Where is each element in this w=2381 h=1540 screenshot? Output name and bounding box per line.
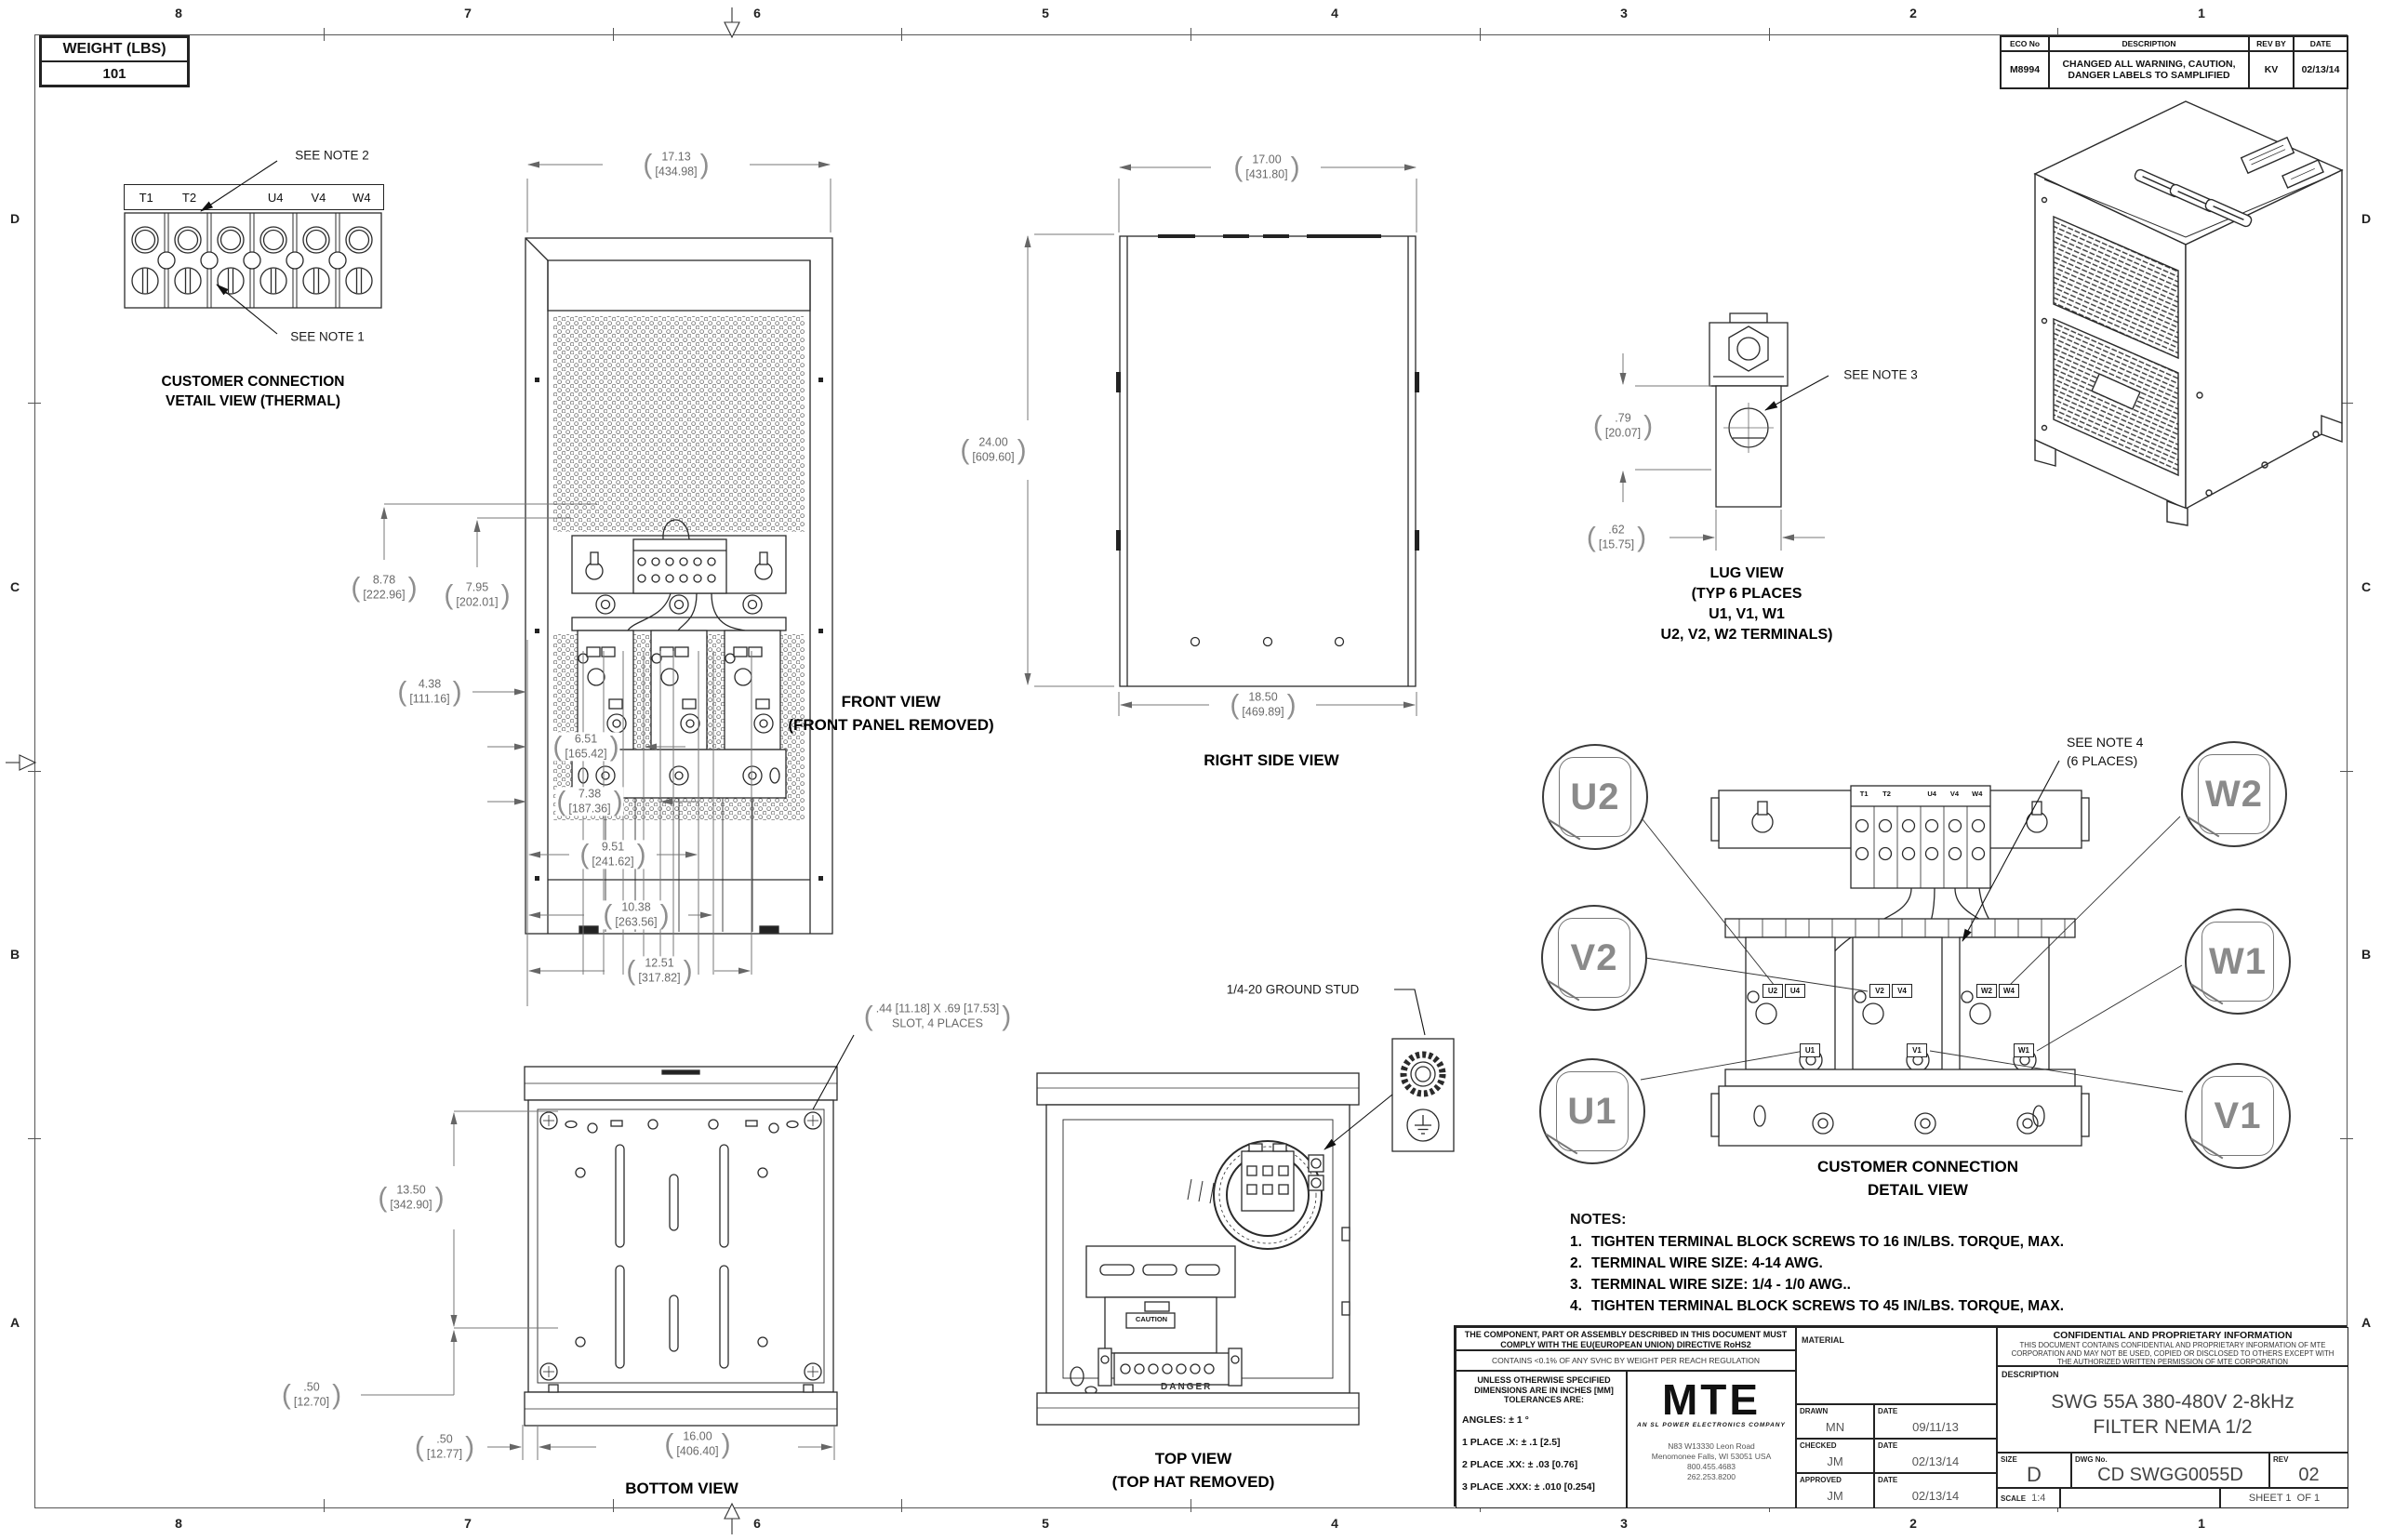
tag-v4: V4 bbox=[1892, 984, 1912, 998]
callout-label-v2: V2 bbox=[1571, 937, 1618, 979]
drawn-date: 09/11/13 bbox=[1875, 1420, 1996, 1434]
zone-col-2-bottom: 2 bbox=[1909, 1516, 1917, 1531]
dim-side-depth: (18.50[469.89]) bbox=[1229, 690, 1297, 719]
zone-row-c-right: C bbox=[2361, 579, 2371, 594]
title-block: THE COMPONENT, PART OR ASSEMBLY DESCRIBE… bbox=[1454, 1325, 2347, 1507]
drawn-box: DRAWN MN bbox=[1796, 1404, 1874, 1439]
zone-tick bbox=[2340, 1138, 2353, 1139]
note-4: 4.TIGHTEN TERMINAL BLOCK SCREWS TO 45 IN… bbox=[1570, 1295, 2064, 1317]
zone-col-1-bottom: 1 bbox=[2198, 1516, 2205, 1531]
tag-u1: U1 bbox=[1800, 1043, 1820, 1057]
zone-col-6-bottom: 6 bbox=[753, 1516, 761, 1531]
tolerance-header-3: TOLERANCES ARE: bbox=[1462, 1395, 1626, 1405]
see-note-1-callout: SEE NOTE 1 bbox=[288, 330, 366, 344]
lug-caption-line3: U1, V1, W1 bbox=[1661, 604, 1833, 625]
approved-date-box: DATE 02/13/14 bbox=[1874, 1473, 1997, 1508]
see-note-4-line2: (6 PLACES) bbox=[2067, 751, 2143, 770]
zone-col-6-top: 6 bbox=[753, 6, 761, 20]
note-3: 3.TERMINAL WIRE SIZE: 1/4 - 1/0 AWG.. bbox=[1570, 1274, 2064, 1295]
zone-tick bbox=[324, 28, 325, 41]
dim-bottom-50b: (.50[12.77]) bbox=[414, 1432, 475, 1461]
mte-phone-1: 800.455.4683 bbox=[1628, 1462, 1795, 1472]
tag-w4: W4 bbox=[1999, 984, 2019, 998]
zone-row-d-right: D bbox=[2361, 211, 2371, 226]
see-note-2-callout: SEE NOTE 2 bbox=[293, 149, 371, 163]
dim-front-h2: (7.95[202.01]) bbox=[443, 580, 511, 609]
checked-date: 02/13/14 bbox=[1875, 1454, 1996, 1468]
description-box: DESCRIPTION SWG 55A 380-480V 2-8kHz FILT… bbox=[1997, 1366, 2348, 1453]
scale-box: SCALE 1:4 bbox=[1997, 1488, 2060, 1508]
front-view-caption: FRONT VIEW (FRONT PANEL REMOVED) bbox=[788, 690, 993, 737]
checked-date-label: DATE bbox=[1878, 1441, 1897, 1450]
compliance-statement: THE COMPONENT, PART OR ASSEMBLY DESCRIBE… bbox=[1456, 1327, 1796, 1350]
weight-value: 101 bbox=[41, 61, 188, 86]
callout-label-u1: U1 bbox=[1567, 1091, 1616, 1133]
zone-tick bbox=[324, 1499, 325, 1512]
lug-view-drawing bbox=[1693, 312, 1804, 539]
checked-date-box: DATE 02/13/14 bbox=[1874, 1439, 1997, 1473]
weight-table: WEIGHT (LBS) 101 bbox=[39, 35, 190, 87]
zone-col-1-top: 1 bbox=[2198, 6, 2205, 20]
mte-address: N83 W13330 Leon Road Menomonee Falls, WI… bbox=[1628, 1441, 1795, 1482]
zone-row-b-right: B bbox=[2361, 947, 2371, 962]
right-view-caption: RIGHT SIDE VIEW bbox=[1204, 751, 1338, 770]
strip-label-u4: U4 bbox=[1921, 790, 1943, 802]
strip-label-w4: W4 bbox=[1966, 790, 1989, 802]
zone-col-3-top: 3 bbox=[1620, 6, 1628, 20]
strip-label-t2: T2 bbox=[1875, 790, 1897, 802]
top-caption-line2: (TOP HAT REMOVED) bbox=[1112, 1470, 1275, 1494]
zone-col-4-bottom: 4 bbox=[1331, 1516, 1338, 1531]
size-value: D bbox=[1998, 1463, 2070, 1487]
terminal-label-u4: U4 bbox=[254, 185, 297, 209]
eco-date: 02/13/14 bbox=[2294, 51, 2348, 88]
zone-tick bbox=[1769, 28, 1770, 41]
top-view-drawing bbox=[1035, 1069, 1361, 1427]
zone-tick bbox=[613, 1499, 614, 1512]
connection-view-caption: CUSTOMER CONNECTION DETAIL VIEW bbox=[1817, 1155, 2018, 1201]
callout-label-u2: U2 bbox=[1570, 777, 1619, 818]
size-box: SIZE D bbox=[1997, 1453, 2071, 1488]
dim-front-438: (4.38[111.16]) bbox=[396, 677, 462, 706]
dim-front-1038: (10.38[263.56]) bbox=[602, 900, 670, 929]
thermal-caption-line2: VETAIL VIEW (THERMAL) bbox=[162, 392, 345, 411]
eco-table: ECO No DESCRIPTION REV BY DATE M8994 CHA… bbox=[2000, 35, 2348, 89]
zone-tick bbox=[901, 1499, 902, 1512]
rev-value: 02 bbox=[2270, 1465, 2348, 1486]
front-caption-line1: FRONT VIEW bbox=[788, 690, 993, 713]
terminal-label-w4: W4 bbox=[340, 185, 383, 209]
ground-stud-callout: 1/4-20 GROUND STUD bbox=[1225, 983, 1362, 997]
zone-tick bbox=[28, 403, 41, 404]
tolerance-header-2: DIMENSIONS ARE IN INCHES [MM] bbox=[1462, 1386, 1626, 1396]
zone-row-a-right: A bbox=[2361, 1315, 2371, 1330]
reach-statement: CONTAINS <0.1% OF ANY SVHC BY WEIGHT PER… bbox=[1456, 1350, 1796, 1371]
zone-tick bbox=[28, 771, 41, 772]
lug-caption-line4: U2, V2, W2 TERMINALS) bbox=[1661, 625, 1833, 645]
dim-side-width: (17.00[431.80]) bbox=[1232, 153, 1300, 181]
checked-label: CHECKED bbox=[1800, 1441, 1837, 1450]
mte-tagline: AN SL POWER ELECTRONICS COMPANY bbox=[1628, 1422, 1795, 1428]
approved-label: APPROVED bbox=[1800, 1476, 1842, 1484]
callout-circle-u1: U1 bbox=[1539, 1058, 1645, 1164]
dim-front-h1: (8.78[222.96]) bbox=[350, 573, 418, 602]
zone-tick bbox=[2340, 771, 2353, 772]
mte-logo: MTE bbox=[1628, 1377, 1795, 1422]
tolerance-angles: ANGLES: ± 1 ° bbox=[1462, 1409, 1626, 1431]
dim-bottom-1600: (16.00[406.40]) bbox=[663, 1429, 731, 1458]
material-box: MATERIAL bbox=[1796, 1327, 1997, 1404]
zone-tick bbox=[1190, 28, 1191, 41]
tolerance-2-place: 2 PLACE .XX: ± .03 [0.76] bbox=[1462, 1454, 1626, 1476]
callout-circle-w1: W1 bbox=[2185, 909, 2291, 1015]
dim-side-height: (24.00[609.60]) bbox=[959, 435, 1027, 464]
eco-description: CHANGED ALL WARNING, CAUTION, DANGER LAB… bbox=[2049, 51, 2249, 88]
tag-u2: U2 bbox=[1762, 984, 1783, 998]
mte-address-1: N83 W13330 Leon Road bbox=[1628, 1441, 1795, 1452]
top-view-caption: TOP VIEW (TOP HAT REMOVED) bbox=[1112, 1447, 1275, 1494]
tag-v2: V2 bbox=[1869, 984, 1890, 998]
confidential-body: THIS DOCUMENT CONTAINS CONFIDENTIAL AND … bbox=[1998, 1341, 2348, 1366]
zone-col-7-bottom: 7 bbox=[464, 1516, 472, 1531]
top-caption-line1: TOP VIEW bbox=[1112, 1447, 1275, 1470]
callout-circle-u2: U2 bbox=[1542, 744, 1648, 850]
terminal-label-v4: V4 bbox=[297, 185, 339, 209]
description-label: DESCRIPTION bbox=[2002, 1370, 2059, 1379]
dim-front-738: (7.38[187.36]) bbox=[555, 787, 623, 816]
zone-tick bbox=[1480, 28, 1481, 41]
bottom-view-drawing bbox=[523, 1063, 839, 1430]
callout-circle-v1: V1 bbox=[2185, 1063, 2291, 1169]
callout-label-v1: V1 bbox=[2215, 1095, 2262, 1137]
strip-label-blank bbox=[1898, 790, 1921, 802]
note-1: 1.TIGHTEN TERMINAL BLOCK SCREWS TO 16 IN… bbox=[1570, 1231, 2064, 1253]
scale-value: 1:4 bbox=[2031, 1493, 2045, 1504]
dim-front-651: (6.51[165.42]) bbox=[552, 732, 619, 761]
thermal-terminal-label-strip: T1 T2 U4 V4 W4 bbox=[124, 184, 384, 210]
connection-caption-line2: DETAIL VIEW bbox=[1817, 1178, 2018, 1201]
approved-date-label: DATE bbox=[1878, 1476, 1897, 1484]
description-text: SWG 55A 380-480V 2-8kHz FILTER NEMA 1/2 bbox=[1998, 1389, 2348, 1440]
note-2: 2.TERMINAL WIRE SIZE: 4-14 AWG. bbox=[1570, 1253, 2064, 1274]
confidential-title: CONFIDENTIAL AND PROPRIETARY INFORMATION bbox=[1998, 1330, 2348, 1341]
eco-header-desc: DESCRIPTION bbox=[2049, 36, 2249, 51]
tolerance-header-1: UNLESS OTHERWISE SPECIFIED bbox=[1462, 1375, 1626, 1386]
dim-bottom-50a: (.50[12.70]) bbox=[281, 1380, 342, 1409]
isometric-view-drawing bbox=[2000, 88, 2362, 525]
size-label: SIZE bbox=[2001, 1455, 2017, 1464]
front-view-drawing bbox=[524, 229, 834, 941]
dim-front-951: (9.51[241.62]) bbox=[579, 840, 646, 869]
terminal-label-t1: T1 bbox=[125, 185, 167, 209]
tolerances-box: UNLESS OTHERWISE SPECIFIED DIMENSIONS AR… bbox=[1456, 1371, 1627, 1508]
notes-block: NOTES: 1.TIGHTEN TERMINAL BLOCK SCREWS T… bbox=[1570, 1209, 2064, 1317]
lug-caption-line2: (TYP 6 PLACES bbox=[1661, 584, 1833, 604]
zone-tick bbox=[901, 28, 902, 41]
dwg-no-box: DWG No. CD SWGG0055D bbox=[2071, 1453, 2269, 1488]
eco-header-date: DATE bbox=[2294, 36, 2348, 51]
sheet-value: SHEET 1 OF 1 bbox=[2249, 1493, 2320, 1504]
zone-col-8-bottom: 8 bbox=[175, 1516, 182, 1531]
approved-box: APPROVED JM bbox=[1796, 1473, 1874, 1508]
front-caption-line2: (FRONT PANEL REMOVED) bbox=[788, 713, 993, 737]
zone-col-5-top: 5 bbox=[1042, 6, 1049, 20]
eco-rev-by: KV bbox=[2249, 51, 2294, 88]
drawing-sheet: 8 7 6 5 4 3 2 1 8 7 6 5 4 3 2 1 D C B A … bbox=[0, 0, 2381, 1540]
terminal-label-blank bbox=[211, 185, 254, 209]
scale-spacer-cell bbox=[2060, 1488, 2220, 1508]
checked-name: JM bbox=[1797, 1454, 1873, 1468]
dwg-no-value: CD SWGG0055D bbox=[2072, 1465, 2268, 1486]
caution-label: CAUTION bbox=[1128, 1315, 1175, 1323]
checked-box: CHECKED JM bbox=[1796, 1439, 1874, 1473]
thermal-terminal-block-drawing bbox=[124, 212, 382, 309]
tolerance-3-place: 3 PLACE .XXX: ± .010 [0.254] bbox=[1462, 1476, 1626, 1498]
approved-date: 02/13/14 bbox=[1875, 1489, 1996, 1503]
drawn-label: DRAWN bbox=[1800, 1407, 1828, 1415]
terminal-label-t2: T2 bbox=[167, 185, 210, 209]
lug-view-caption: LUG VIEW (TYP 6 PLACES U1, V1, W1 U2, V2… bbox=[1661, 564, 1833, 645]
zone-tick bbox=[1190, 1499, 1191, 1512]
mte-phone-2: 262.253.8200 bbox=[1628, 1472, 1795, 1482]
dwg-no-label: DWG No. bbox=[2075, 1455, 2108, 1464]
slot-note: (.44 [11.18] X .69 [17.53]SLOT, 4 PLACES… bbox=[863, 1002, 1013, 1030]
zone-row-b-left: B bbox=[10, 947, 20, 962]
mte-address-2: Menomonee Falls, WI 53051 USA bbox=[1628, 1452, 1795, 1462]
connection-strip-labels: T1 T2 U4 V4 W4 bbox=[1853, 790, 1989, 802]
lug-caption-line1: LUG VIEW bbox=[1661, 564, 1833, 584]
eco-no: M8994 bbox=[2001, 51, 2049, 88]
dim-front-width: (17.13[434.98]) bbox=[642, 150, 710, 179]
right-side-view-drawing bbox=[1116, 232, 1419, 690]
eco-header-no: ECO No bbox=[2001, 36, 2049, 51]
approved-name: JM bbox=[1797, 1489, 1873, 1503]
notes-title: NOTES: bbox=[1570, 1209, 2064, 1231]
see-note-4-callout: SEE NOTE 4 (6 PLACES) bbox=[2067, 733, 2143, 770]
tag-u4: U4 bbox=[1785, 984, 1805, 998]
dim-lug-62: (.62[15.75]) bbox=[1586, 523, 1647, 551]
zone-col-7-top: 7 bbox=[464, 6, 472, 20]
zone-row-d-left: D bbox=[10, 211, 20, 226]
sheet-box: SHEET 1 OF 1 bbox=[2220, 1488, 2348, 1508]
zone-col-3-bottom: 3 bbox=[1620, 1516, 1628, 1531]
connection-caption-line1: CUSTOMER CONNECTION bbox=[1817, 1155, 2018, 1178]
confidential-box: CONFIDENTIAL AND PROPRIETARY INFORMATION… bbox=[1997, 1327, 2348, 1366]
zone-row-c-left: C bbox=[10, 579, 20, 594]
thermal-view-caption: CUSTOMER CONNECTION VETAIL VIEW (THERMAL… bbox=[162, 372, 345, 411]
tag-v1: V1 bbox=[1907, 1043, 1927, 1057]
dim-lug-79: (.79[20.07]) bbox=[1592, 411, 1654, 440]
bottom-view-caption: BOTTOM VIEW bbox=[625, 1480, 738, 1498]
scale-label: SCALE bbox=[2001, 1494, 2026, 1503]
rev-box: REV 02 bbox=[2269, 1453, 2348, 1488]
ground-stud-detail-drawing bbox=[1390, 1037, 1456, 1153]
callout-circle-w2: W2 bbox=[2181, 741, 2287, 847]
drawn-date-box: DATE 09/11/13 bbox=[1874, 1404, 1997, 1439]
danger-label: DANGER bbox=[1161, 1382, 1212, 1392]
zone-col-4-top: 4 bbox=[1331, 6, 1338, 20]
dim-bottom-1350: (13.50[342.90]) bbox=[377, 1183, 445, 1212]
zone-col-8-top: 8 bbox=[175, 6, 182, 20]
zone-col-5-bottom: 5 bbox=[1042, 1516, 1049, 1531]
strip-label-t1: T1 bbox=[1853, 790, 1875, 802]
zone-col-2-top: 2 bbox=[1909, 6, 1917, 20]
eco-header-rev: REV BY bbox=[2249, 36, 2294, 51]
tolerance-1-place: 1 PLACE .X: ± .1 [2.5] bbox=[1462, 1431, 1626, 1454]
connection-detail-drawing bbox=[1711, 781, 2093, 1153]
strip-label-v4: V4 bbox=[1943, 790, 1965, 802]
tag-w1: W1 bbox=[2014, 1043, 2034, 1057]
mte-logo-box: MTE AN SL POWER ELECTRONICS COMPANY N83 … bbox=[1627, 1371, 1796, 1508]
description-line2: FILTER NEMA 1/2 bbox=[1998, 1414, 2348, 1440]
zone-row-a-left: A bbox=[10, 1315, 20, 1330]
zone-tick bbox=[28, 1138, 41, 1139]
callout-circle-v2: V2 bbox=[1541, 905, 1647, 1011]
weight-table-title: WEIGHT (LBS) bbox=[41, 37, 188, 61]
callout-label-w2: W2 bbox=[2205, 774, 2263, 816]
see-note-3-callout: SEE NOTE 3 bbox=[1842, 368, 1920, 382]
tag-w2: W2 bbox=[1976, 984, 1997, 998]
thermal-caption-line1: CUSTOMER CONNECTION bbox=[162, 372, 345, 392]
rev-label: REV bbox=[2273, 1455, 2288, 1464]
callout-label-w1: W1 bbox=[2209, 941, 2267, 983]
zone-tick bbox=[613, 28, 614, 41]
material-label: MATERIAL bbox=[1802, 1335, 1844, 1345]
drawn-name: MN bbox=[1797, 1420, 1873, 1434]
see-note-4-line1: SEE NOTE 4 bbox=[2067, 733, 2143, 751]
dim-front-1251: (12.51[317.82]) bbox=[625, 956, 693, 985]
drawn-date-label: DATE bbox=[1878, 1407, 1897, 1415]
description-line1: SWG 55A 380-480V 2-8kHz bbox=[1998, 1389, 2348, 1414]
